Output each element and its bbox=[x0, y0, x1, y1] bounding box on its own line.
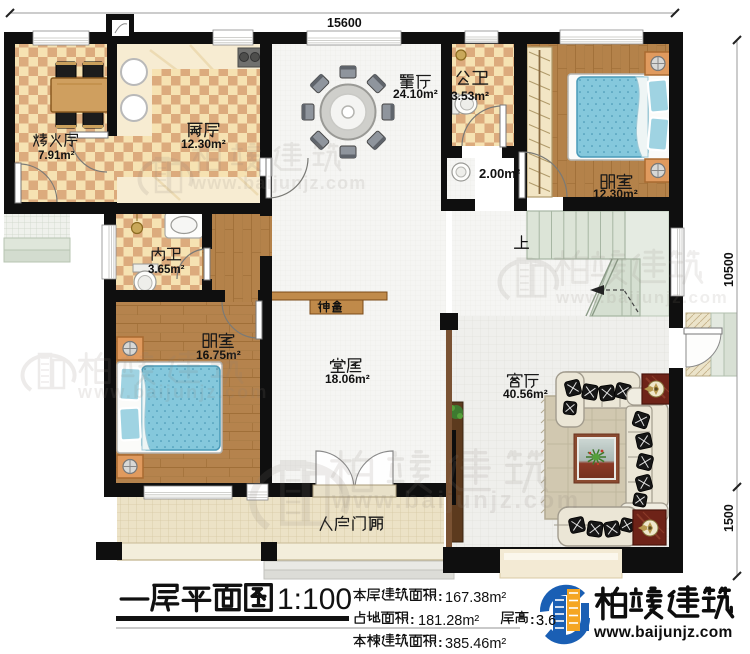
svg-text:18.06m²: 18.06m² bbox=[325, 372, 370, 386]
svg-text:181.28m²: 181.28m² bbox=[418, 613, 479, 629]
svg-text:24.10m²: 24.10m² bbox=[393, 87, 438, 101]
svg-text:www.baijunjz.com: www.baijunjz.com bbox=[191, 173, 367, 193]
svg-text:167.38m²: 167.38m² bbox=[445, 590, 506, 606]
svg-text:3.6: 3.6 bbox=[536, 613, 556, 629]
svg-text:40.56m²: 40.56m² bbox=[503, 387, 548, 401]
svg-text:12.30m²: 12.30m² bbox=[593, 187, 638, 201]
svg-text::: : bbox=[438, 634, 443, 650]
svg-text:2.00m²: 2.00m² bbox=[479, 166, 521, 181]
svg-text:10500: 10500 bbox=[722, 252, 736, 287]
svg-text::: : bbox=[530, 611, 535, 627]
svg-text:www.baijunjz.com: www.baijunjz.com bbox=[331, 487, 581, 514]
svg-text:www.baijunjz.com: www.baijunjz.com bbox=[593, 624, 733, 641]
svg-text:www.baijunjz.com: www.baijunjz.com bbox=[555, 288, 728, 307]
svg-text:1:100: 1:100 bbox=[277, 583, 352, 616]
svg-text:3.65m²: 3.65m² bbox=[148, 264, 185, 276]
svg-text:1500: 1500 bbox=[722, 504, 736, 532]
svg-text:15600: 15600 bbox=[327, 16, 362, 30]
svg-text:www.baijunjz.com: www.baijunjz.com bbox=[77, 382, 269, 402]
svg-text:3.53m²: 3.53m² bbox=[451, 89, 489, 103]
svg-text:385.46m²: 385.46m² bbox=[445, 636, 506, 652]
svg-text::: : bbox=[438, 588, 443, 604]
svg-text:7.91m²: 7.91m² bbox=[38, 150, 75, 162]
svg-text::: : bbox=[410, 611, 415, 627]
